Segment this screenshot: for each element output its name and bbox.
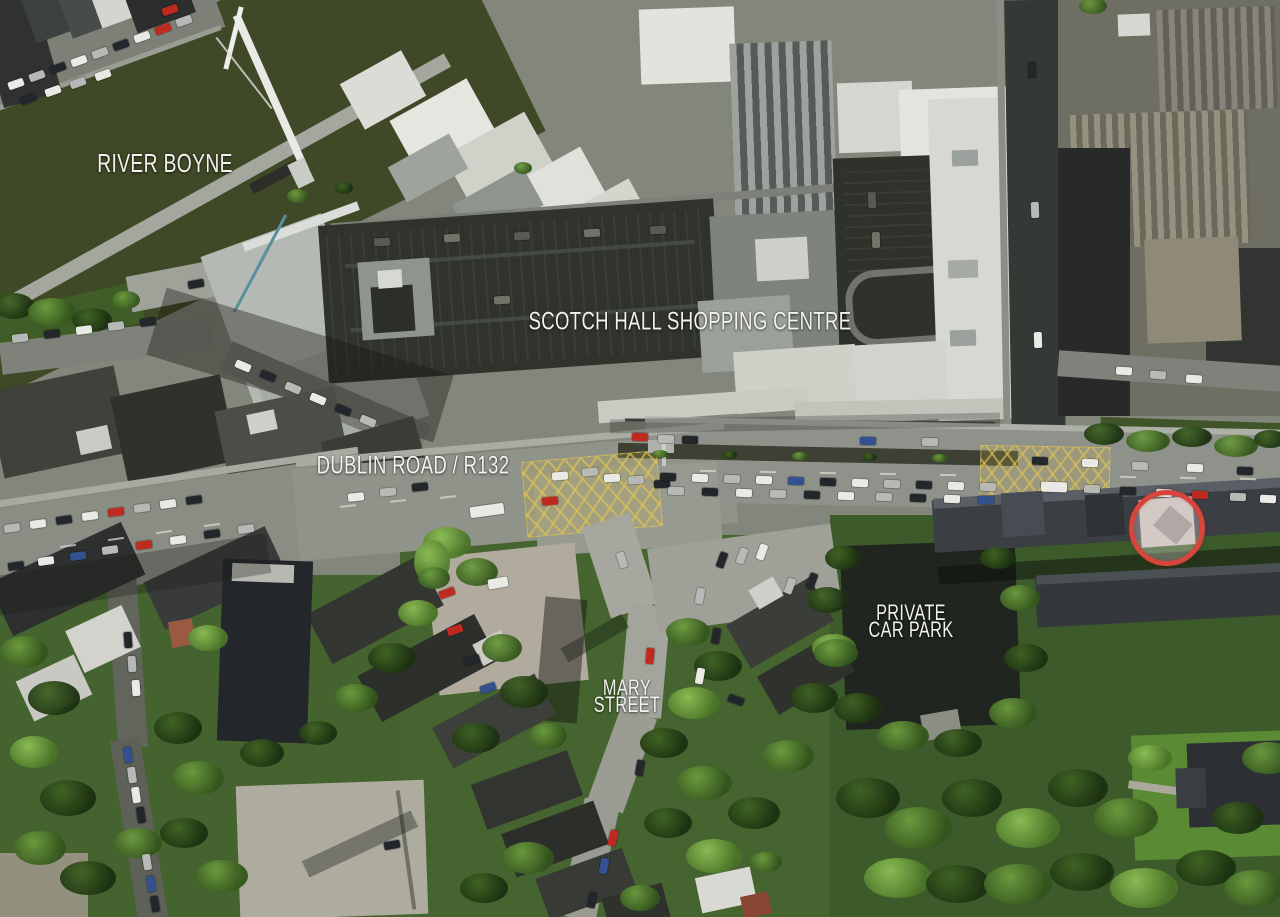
tree [240,739,284,767]
vehicle [944,495,960,504]
vehicle [724,475,740,484]
vehicle [494,295,511,304]
vehicle [682,436,698,444]
tree [482,634,522,662]
tree [0,636,48,668]
tree [942,779,1002,817]
vehicle [876,493,892,502]
tree [287,189,309,203]
vehicle [1041,482,1067,493]
road-marking [700,470,716,472]
vehicle [650,225,667,234]
vehicle [1028,62,1037,78]
vehicle [770,490,786,499]
vehicle [658,435,674,443]
tree [814,639,858,667]
courtyard-roof [370,285,415,334]
mall-roof-white [755,237,809,282]
label-scotch-hall-text: SCOTCH HALL SHOPPING CENTRE [529,308,852,336]
vehicle [910,494,926,503]
tree [1212,802,1264,834]
tree [14,831,66,865]
tree [160,818,208,848]
label-mary-street-line2: STREET [594,696,660,713]
tree [1128,745,1172,771]
vehicle [838,492,854,501]
vehicle [1230,493,1246,502]
house-roof [1001,491,1046,537]
rooftop-unit [950,330,977,347]
tree [686,839,742,873]
tree [196,860,248,892]
label-private-car-park-line2: CAR PARK [869,621,954,638]
tree [836,778,900,818]
vehicle [1032,457,1048,466]
vehicle [1031,202,1040,218]
tree [668,687,720,719]
tree [28,298,76,326]
vehicle [123,632,132,649]
vehicle [736,489,752,498]
vehicle [948,482,964,491]
tree [825,546,861,570]
vehicle [1132,462,1148,471]
vehicle [702,488,718,497]
tree [863,453,877,461]
vehicle [860,437,876,445]
tree [792,452,808,460]
tree [1084,423,1124,445]
location-marker-circle [1129,490,1205,566]
courtyard-roof-white [377,269,402,289]
rooftop-unit [952,150,979,167]
vehicle [788,477,804,486]
tree [398,600,438,626]
tree [984,864,1052,904]
road-marking [940,474,956,476]
mall-roof-white [639,6,737,84]
tree [452,723,500,753]
vehicle [604,473,621,482]
tree [368,643,416,673]
label-river_boyne: RIVER BOYNE [97,150,233,176]
tree [40,780,96,816]
rooftop-unit [948,259,979,278]
large-building-roof [217,558,313,743]
tree [1172,427,1212,447]
vehicle [978,496,994,505]
vehicle [1082,459,1098,468]
vehicle [668,487,684,496]
tree [1000,585,1040,611]
road-marking [880,473,896,475]
tree [864,858,932,898]
vehicle [1186,374,1203,383]
tree [418,567,450,589]
label-private_car_park: PRIVATE CAR PARK [869,604,954,638]
tree [1048,769,1108,807]
vehicle [628,475,645,484]
tree [1254,430,1280,448]
tree [1050,853,1114,891]
label-dublin-road-text: DUBLIN ROAD / R132 [317,452,510,480]
vehicle [916,481,932,490]
vehicle [131,680,140,697]
roof-white [1118,13,1151,36]
label-dublin_road: DUBLIN ROAD / R132 [317,454,510,479]
vehicle [582,467,599,476]
aerial-map: RIVER BOYNE SCOTCH HALL SHOPPING CENTRE … [0,0,1280,917]
tree [335,182,353,194]
tree [1110,868,1178,908]
vehicle [632,433,648,441]
label-scotch_hall: SCOTCH HALL SHOPPING CENTRE [529,310,852,335]
tree [884,807,952,849]
vehicle [1187,464,1203,473]
tree [926,865,990,903]
vehicle [1084,485,1100,494]
tree [188,625,228,651]
house-roof [1085,493,1125,537]
vehicle [1034,332,1043,348]
vehicle [980,483,996,492]
warehouse-roof [1156,6,1277,112]
house-roof [1175,767,1206,808]
vehicle [1116,366,1133,375]
tree [652,450,668,458]
tree [460,873,508,903]
vehicle [584,228,601,237]
vehicle [542,496,559,505]
label-mary_street: MARY STREET [594,679,660,713]
tree [834,693,882,723]
vehicle [884,480,900,489]
roof-red [740,891,772,917]
tree [112,291,140,309]
vehicle [1260,495,1276,504]
tree [500,676,548,708]
tree [28,681,80,715]
tree [877,721,929,751]
tree [989,698,1037,728]
tree [807,587,847,613]
tree [10,736,58,768]
tree [934,729,982,757]
tree [502,842,554,874]
tree [60,861,116,895]
tree [676,766,732,800]
tree [620,885,660,911]
vehicle [380,487,397,497]
vehicle [514,231,531,240]
vehicle [412,482,429,492]
vehicle [660,473,676,482]
vehicle [852,479,868,488]
label-river-boyne-text: RIVER BOYNE [97,148,233,178]
tree [666,618,710,646]
vehicle [1150,370,1167,379]
vehicle [127,656,136,673]
tree [790,683,838,713]
vehicle [868,192,877,208]
vehicle [872,232,881,248]
tree [728,797,780,829]
tree [114,828,162,858]
tree [299,721,337,745]
tree [1224,870,1280,906]
warehouse-yard [1144,236,1242,343]
tree [1004,644,1048,672]
vehicle [692,474,708,483]
vehicle [756,476,772,485]
tree [932,454,948,462]
tree [334,684,378,712]
tree [980,547,1016,569]
vehicle [820,478,836,487]
vehicle [374,237,391,246]
road-marking [820,472,836,474]
vehicle [922,438,938,446]
tree [154,712,202,744]
tree [644,808,692,838]
vehicle [348,492,365,502]
vehicle [444,233,461,242]
tree [1214,435,1258,457]
vehicle [1237,467,1253,476]
tree [996,808,1060,848]
tree [750,852,782,872]
tree [529,723,567,749]
tree [514,162,532,174]
tree [1126,430,1170,452]
tree [1094,798,1158,838]
tree [762,740,814,772]
vehicle [804,491,820,500]
vehicle [645,648,654,665]
tree [172,761,224,795]
vehicle [1192,491,1208,500]
tree [723,451,737,459]
vehicle [1120,487,1136,496]
tree [640,728,688,758]
road-marking [760,471,776,473]
vehicle [552,471,569,480]
